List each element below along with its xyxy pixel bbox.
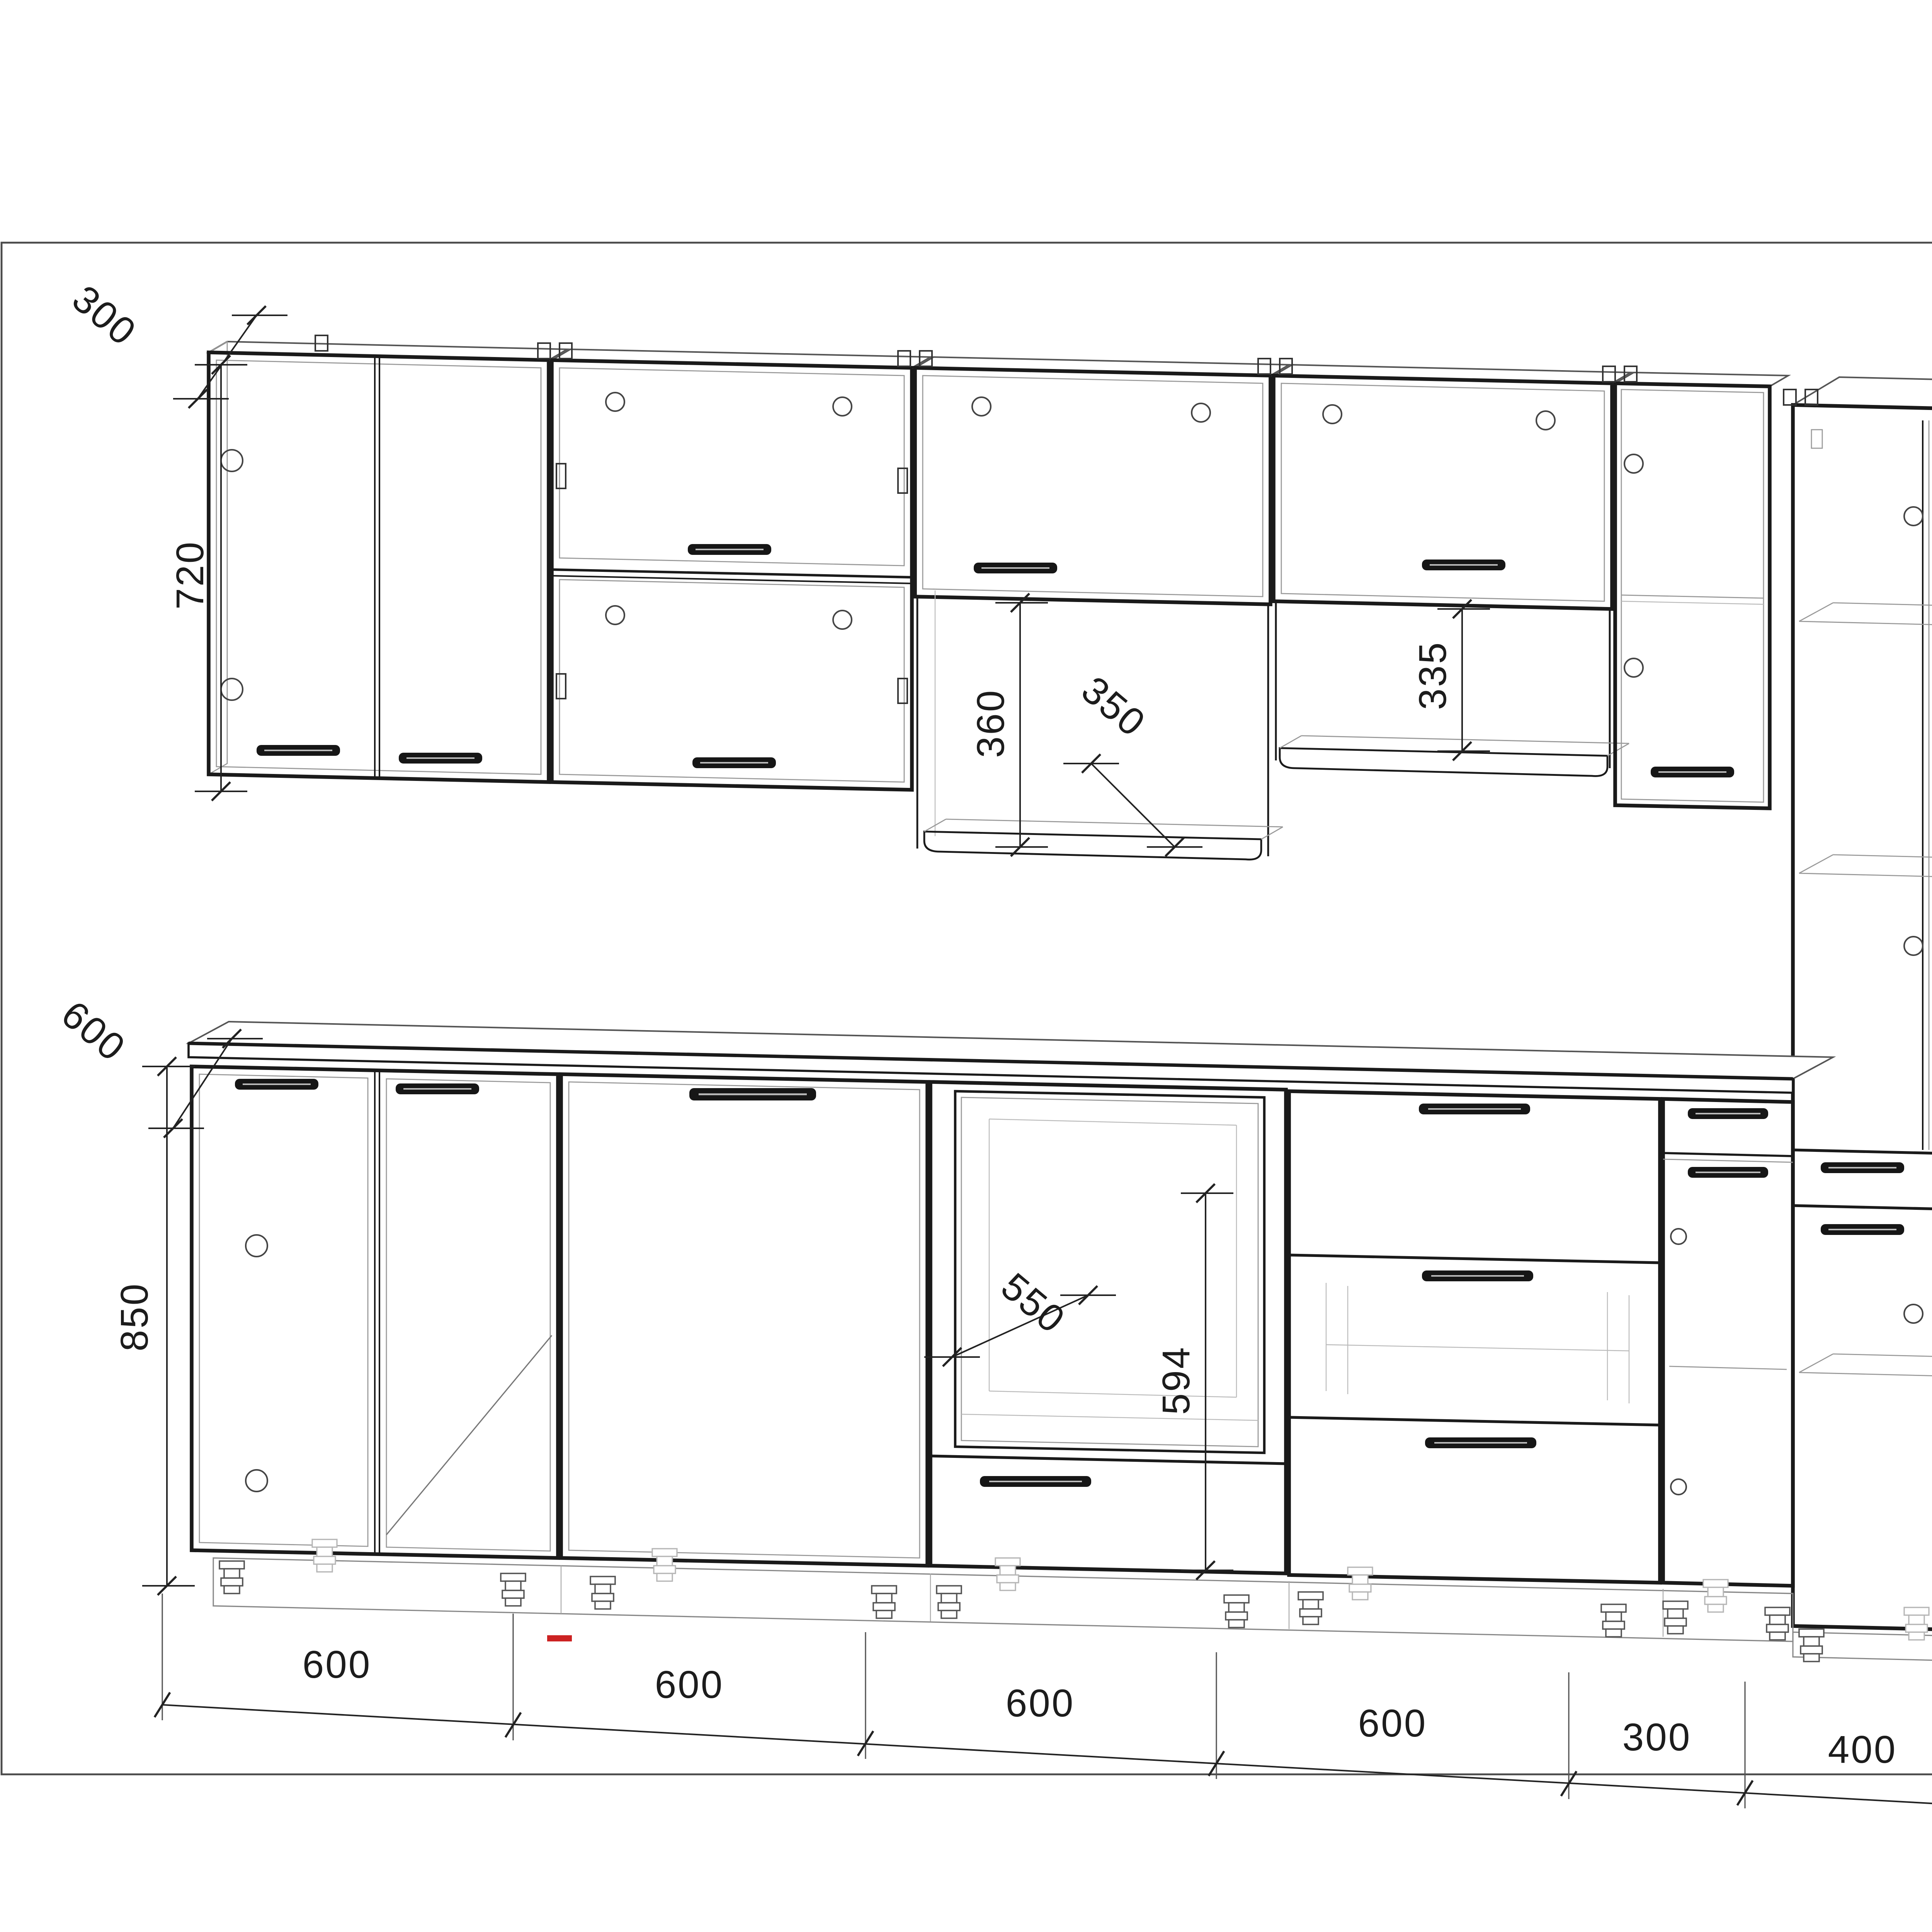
oven-housing-cabinet	[930, 1082, 1286, 1573]
dim-base-width-1: 600	[303, 1644, 372, 1689]
dim-hood-opening-height: 335	[1412, 641, 1457, 710]
dim-base-width-4: 600	[1358, 1702, 1427, 1747]
plinth-and-feet	[213, 1539, 1932, 1674]
dim-base-width-3: 600	[1006, 1682, 1075, 1727]
wall-cabinet-flip-double	[538, 343, 930, 790]
drawing-canvas	[0, 0, 1932, 1932]
dim-base-height: 850	[114, 1282, 158, 1352]
dim-base-width-2: 600	[655, 1664, 724, 1709]
kitchen-technical-drawing: 300 720 360 350 335 570 2145 600 850 550…	[0, 0, 1932, 1932]
page-scaler: 300 720 360 350 335 570 2145 600 850 550…	[0, 0, 1932, 1932]
red-plinth-marker	[547, 1635, 572, 1641]
dim-base-width-6: 400	[1828, 1729, 1897, 1774]
drawer-base-cabinet	[1289, 1091, 1660, 1583]
wall-cabinet-double-door	[209, 335, 567, 782]
dishwasher-panel	[561, 1074, 927, 1566]
tall-cabinet-1	[1784, 377, 1932, 1632]
dim-base-width-5: 300	[1622, 1716, 1692, 1761]
wall-cabinet-300	[1603, 366, 1788, 808]
hood-cabinet-335-open	[1258, 359, 1631, 776]
base-cabinet-sink	[192, 1066, 558, 1558]
dim-flip-opening-height: 360	[970, 689, 1015, 758]
dim-wall-height: 720	[169, 541, 214, 610]
base-cabinet-300	[1663, 1099, 1793, 1586]
hood-cabinet-360-open	[898, 351, 1289, 860]
dim-oven-opening-height: 594	[1155, 1346, 1200, 1415]
